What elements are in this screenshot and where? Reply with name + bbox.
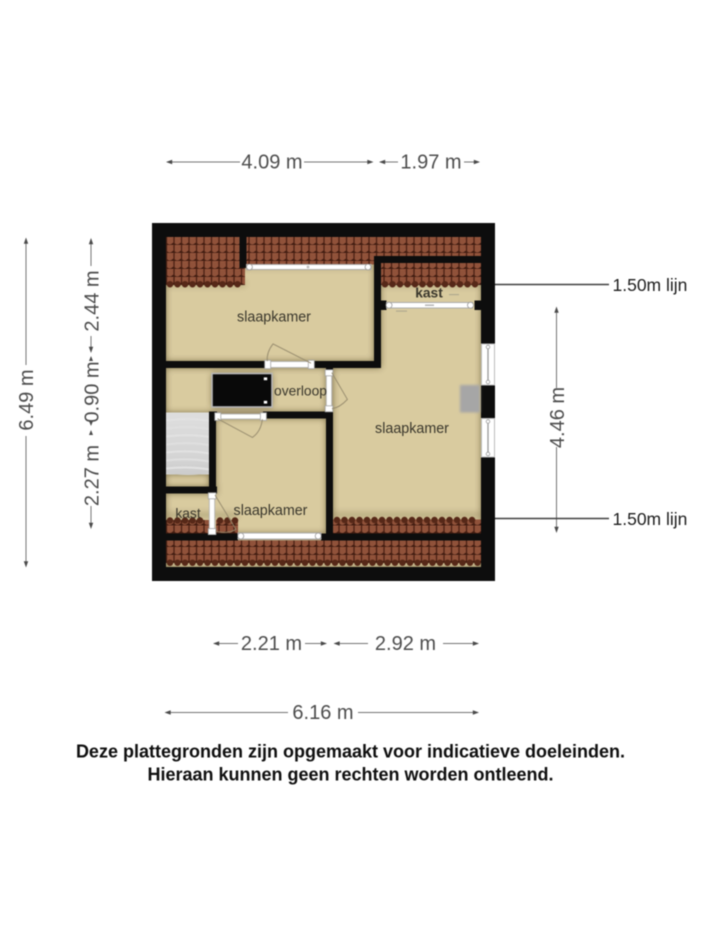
- svg-text:Deze plattegronden zijn opgema: Deze plattegronden zijn opgemaakt voor i…: [76, 742, 625, 762]
- svg-text:4.09 m: 4.09 m: [241, 152, 302, 174]
- svg-text:kast: kast: [175, 506, 200, 521]
- svg-text:2.27 m: 2.27 m: [82, 445, 104, 506]
- svg-text:overloop: overloop: [274, 384, 327, 399]
- svg-text:4.46 m: 4.46 m: [547, 387, 569, 448]
- svg-text:6.16 m: 6.16 m: [292, 702, 353, 724]
- svg-text:kast: kast: [415, 286, 443, 301]
- svg-text:2.21 m: 2.21 m: [241, 633, 302, 655]
- svg-text:6.49 m: 6.49 m: [16, 369, 38, 430]
- svg-text:1.50m lijn: 1.50m lijn: [613, 509, 688, 529]
- svg-text:1.50m lijn: 1.50m lijn: [613, 275, 688, 295]
- svg-text:slaapkamer: slaapkamer: [375, 421, 449, 437]
- svg-text:slaapkamer: slaapkamer: [237, 310, 311, 326]
- svg-text:slaapkamer: slaapkamer: [234, 503, 308, 519]
- svg-text:2.92 m: 2.92 m: [375, 633, 436, 655]
- svg-text:0.90 m: 0.90 m: [82, 361, 104, 422]
- svg-text:2.44 m: 2.44 m: [82, 270, 104, 331]
- svg-text:1.97 m: 1.97 m: [400, 152, 461, 174]
- svg-text:Hieraan kunnen geen rechten wo: Hieraan kunnen geen rechten worden ontle…: [147, 765, 553, 785]
